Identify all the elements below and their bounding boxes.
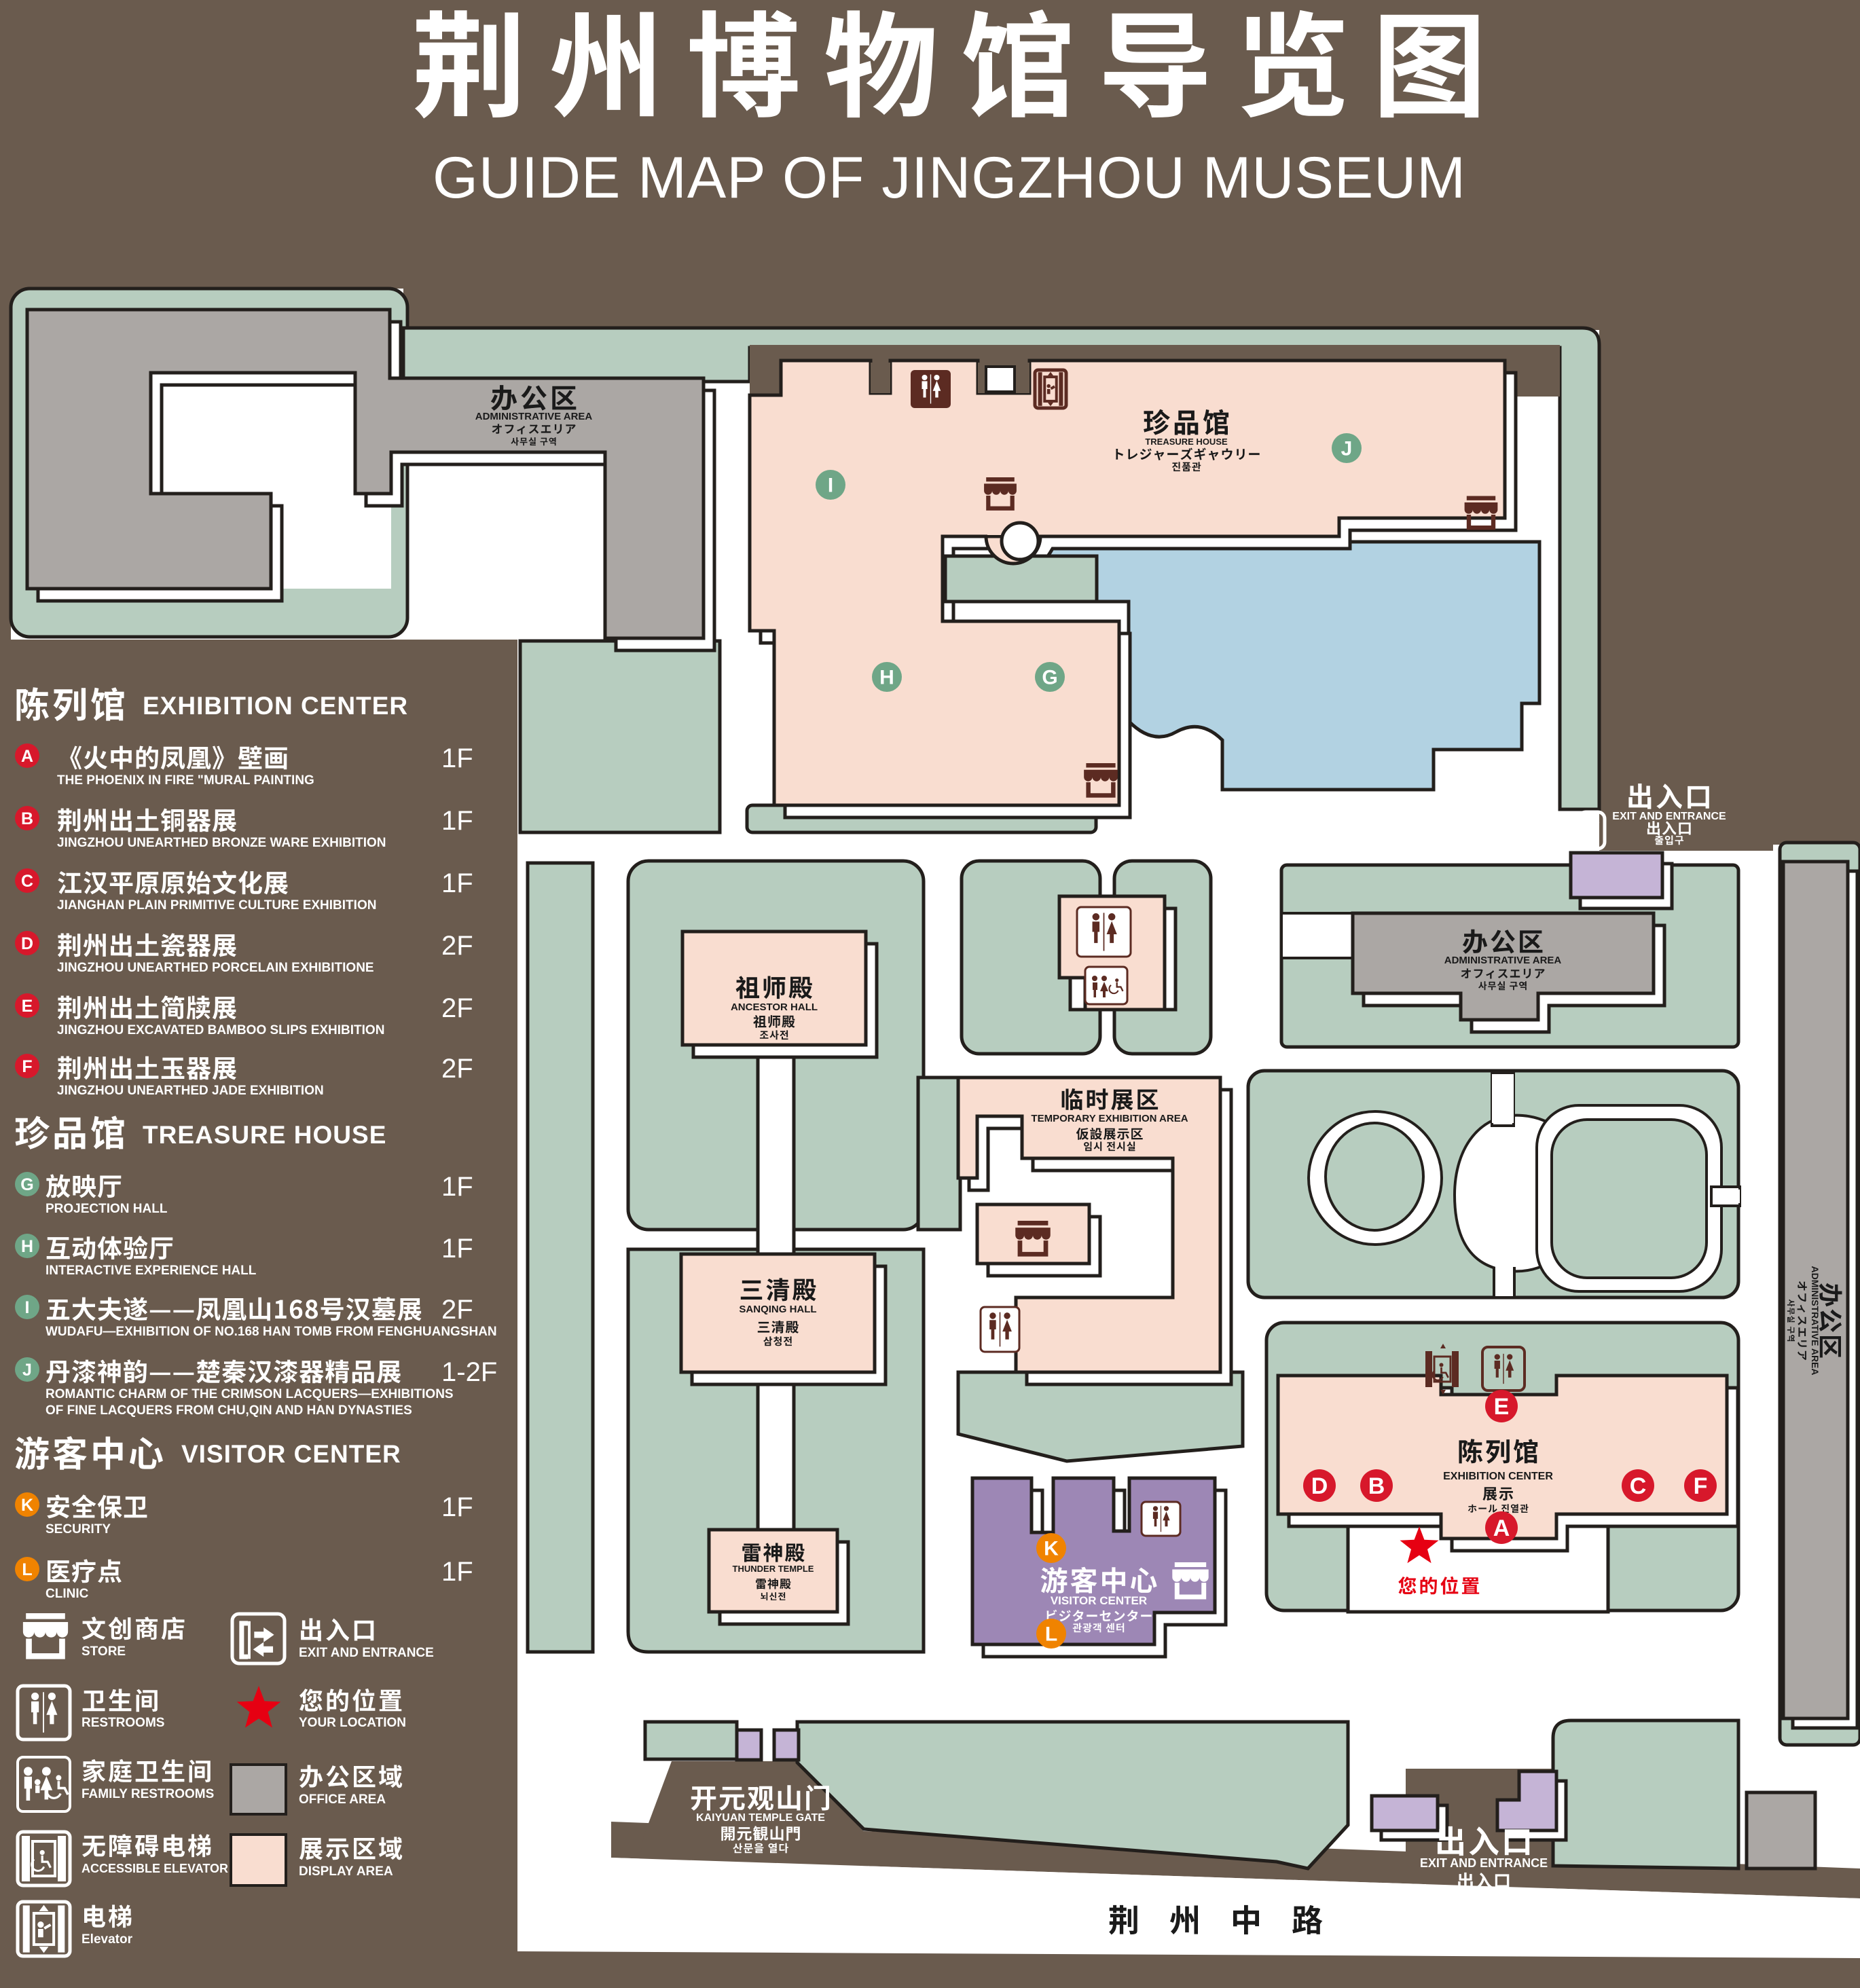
svg-text:SECURITY: SECURITY bbox=[45, 1522, 111, 1536]
svg-text:F: F bbox=[1694, 1473, 1708, 1499]
svg-text:KAIYUAN TEMPLE GATE: KAIYUAN TEMPLE GATE bbox=[696, 1812, 825, 1824]
svg-text:1F: 1F bbox=[441, 868, 473, 898]
svg-text:1F: 1F bbox=[441, 1557, 473, 1587]
svg-text:1F: 1F bbox=[441, 806, 473, 836]
svg-text:THE PHOENIX IN FIRE "MURAL PAI: THE PHOENIX IN FIRE "MURAL PAINTING bbox=[57, 773, 314, 788]
svg-text:JINGZHOU UNEARTHED PORCELAIN E: JINGZHOU UNEARTHED PORCELAIN EXHIBITIONE bbox=[57, 961, 374, 975]
svg-text:RESTROOMS: RESTROOMS bbox=[81, 1716, 164, 1730]
svg-text:G: G bbox=[1042, 667, 1057, 689]
svg-text:GUIDE MAP OF JINGZHOU MUSEUM: GUIDE MAP OF JINGZHOU MUSEUM bbox=[433, 145, 1466, 210]
svg-text:K: K bbox=[21, 1496, 33, 1515]
svg-text:Elevator: Elevator bbox=[81, 1932, 133, 1947]
svg-text:TREASURE HOUSE: TREASURE HOUSE bbox=[1145, 437, 1228, 447]
svg-text:EXIT AND ENTRANCE: EXIT AND ENTRANCE bbox=[1612, 811, 1726, 822]
svg-text:L: L bbox=[1045, 1623, 1057, 1646]
svg-text:2F: 2F bbox=[441, 993, 473, 1023]
svg-text:TREASURE HOUSE: TREASURE HOUSE bbox=[143, 1121, 386, 1149]
svg-text:1F: 1F bbox=[441, 743, 473, 773]
svg-text:D: D bbox=[1311, 1473, 1328, 1499]
svg-text:JINGZHOU EXCAVATED BAMBOO SLIP: JINGZHOU EXCAVATED BAMBOO SLIPS EXHIBITI… bbox=[57, 1023, 384, 1037]
svg-text:ROMANTIC CHARM OF THE CRIMSON: ROMANTIC CHARM OF THE CRIMSON LACQUERS—E… bbox=[45, 1387, 454, 1401]
svg-text:C: C bbox=[21, 872, 33, 891]
svg-text:L: L bbox=[22, 1560, 32, 1579]
svg-text:JIANGHAN PLAIN PRIMITIVE CULTU: JIANGHAN PLAIN PRIMITIVE CULTURE EXHIBIT… bbox=[57, 898, 376, 913]
svg-text:B: B bbox=[21, 809, 33, 828]
svg-text:J: J bbox=[22, 1361, 32, 1380]
svg-text:TEMPORARY EXHIBITION AREA: TEMPORARY EXHIBITION AREA bbox=[1031, 1113, 1188, 1124]
svg-text:VISITOR CENTER: VISITOR CENTER bbox=[1051, 1594, 1147, 1607]
svg-text:INTERACTIVE EXPERIENCE HALL: INTERACTIVE EXPERIENCE HALL bbox=[45, 1264, 257, 1278]
svg-text:VISITOR CENTER: VISITOR CENTER bbox=[181, 1440, 401, 1468]
svg-text:1F: 1F bbox=[441, 1492, 473, 1522]
svg-text:CLINIC: CLINIC bbox=[45, 1587, 89, 1601]
svg-text:DISPLAY AREA: DISPLAY AREA bbox=[299, 1864, 393, 1879]
svg-text:PROJECTION HALL: PROJECTION HALL bbox=[45, 1202, 168, 1216]
svg-text:THUNDER TEMPLE: THUNDER TEMPLE bbox=[733, 1564, 814, 1574]
svg-text:ADMINISTRATIVE AREA: ADMINISTRATIVE AREA bbox=[475, 411, 593, 422]
svg-text:D: D bbox=[21, 934, 33, 953]
svg-text:EXHIBITION CENTER: EXHIBITION CENTER bbox=[143, 692, 408, 720]
svg-text:ANCESTOR HALL: ANCESTOR HALL bbox=[731, 1001, 818, 1013]
svg-text:1F: 1F bbox=[441, 1234, 473, 1264]
svg-text:STORE: STORE bbox=[81, 1644, 126, 1659]
svg-text:1F: 1F bbox=[441, 1172, 473, 1202]
svg-text:I: I bbox=[25, 1298, 30, 1317]
svg-text:J: J bbox=[1341, 438, 1353, 460]
svg-text:2F: 2F bbox=[441, 1054, 473, 1084]
svg-text:EXIT AND ENTRANCE: EXIT AND ENTRANCE bbox=[299, 1646, 434, 1660]
svg-text:SANQING HALL: SANQING HALL bbox=[739, 1304, 816, 1315]
svg-text:ACCESSIBLE ELEVATOR: ACCESSIBLE ELEVATOR bbox=[81, 1862, 228, 1875]
svg-text:EXHIBITION CENTER: EXHIBITION CENTER bbox=[1443, 1471, 1553, 1482]
svg-text:WUDAFU—EXHIBITION OF NO.168 HA: WUDAFU—EXHIBITION OF NO.168 HAN TOMB FRO… bbox=[45, 1325, 497, 1339]
svg-text:EXIT AND ENTRANCE: EXIT AND ENTRANCE bbox=[1420, 1856, 1548, 1870]
svg-text:JINGZHOU UNEARTHED JADE EXHIBI: JINGZHOU UNEARTHED JADE EXHIBITION bbox=[57, 1084, 324, 1098]
svg-text:JINGZHOU UNEARTHED BRONZE WARE: JINGZHOU UNEARTHED BRONZE WARE EXHIBITIO… bbox=[57, 836, 386, 850]
svg-text:E: E bbox=[22, 997, 33, 1016]
svg-text:H: H bbox=[21, 1237, 33, 1256]
svg-text:F: F bbox=[22, 1057, 32, 1076]
svg-text:B: B bbox=[1368, 1473, 1385, 1499]
svg-text:ADMINISTRATIVE AREA: ADMINISTRATIVE AREA bbox=[1444, 955, 1562, 966]
svg-text:ADMINISTRATIVE AREA: ADMINISTRATIVE AREA bbox=[1810, 1266, 1821, 1376]
svg-text:G: G bbox=[20, 1175, 33, 1194]
svg-text:A: A bbox=[21, 747, 33, 766]
svg-text:A: A bbox=[1493, 1515, 1510, 1541]
svg-text:OF FINE LACQUERS FROM CHU,QIN: OF FINE LACQUERS FROM CHU,QIN AND HAN DY… bbox=[45, 1403, 412, 1418]
svg-text:1-2F: 1-2F bbox=[441, 1357, 497, 1387]
svg-text:FAMILY RESTROOMS: FAMILY RESTROOMS bbox=[81, 1787, 214, 1801]
svg-text:YOUR LOCATION: YOUR LOCATION bbox=[299, 1716, 406, 1730]
svg-text:H: H bbox=[879, 667, 894, 689]
svg-text:OFFICE AREA: OFFICE AREA bbox=[299, 1792, 386, 1807]
svg-text:K: K bbox=[1044, 1538, 1059, 1560]
svg-text:E: E bbox=[1494, 1394, 1510, 1420]
svg-text:2F: 2F bbox=[441, 1295, 473, 1325]
svg-text:I: I bbox=[828, 475, 833, 497]
svg-text:C: C bbox=[1630, 1473, 1647, 1499]
svg-text:2F: 2F bbox=[441, 931, 473, 961]
